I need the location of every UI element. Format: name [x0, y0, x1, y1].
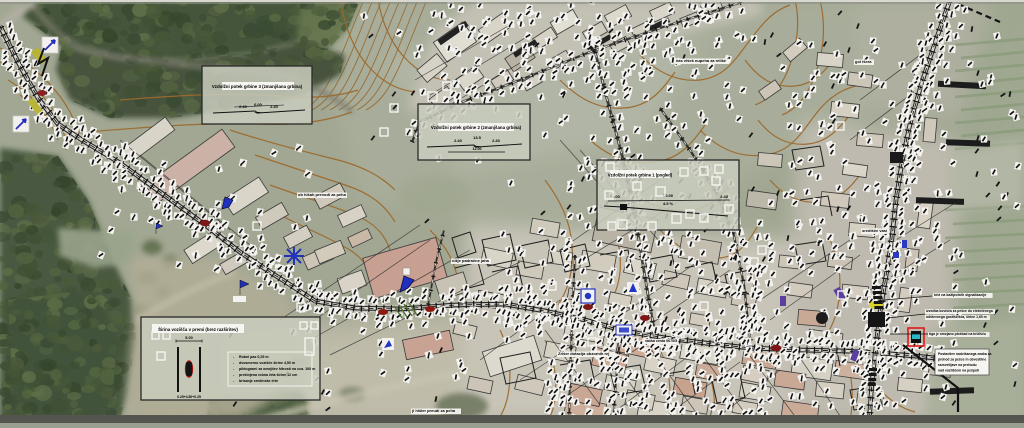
svg-text:4.9 %: 4.9 %: [663, 201, 674, 206]
svg-text:odštevnega gostiščišča, širine: odštevnega gostiščišča, širine 1,60 m: [926, 315, 987, 319]
svg-text:Zrišer dotacija obzornih rej: Zrišer dotacija obzornih rej: [558, 351, 609, 356]
svg-text:izvedba kovišča za pešce do el: izvedba kovišča za pešce do električnega: [926, 309, 993, 313]
svg-text:2.40: 2.40: [720, 194, 729, 199]
svg-text:središče vasi: središče vasi: [862, 228, 887, 233]
svg-text:2.40: 2.40: [270, 104, 279, 109]
svg-text:0.25+4.50+0.25: 0.25+4.50+0.25: [177, 395, 201, 399]
svg-text:ji hišler preudi za peha: ji hišler preudi za peha: [411, 408, 456, 413]
svg-text:2.40: 2.40: [492, 138, 501, 143]
svg-text:Vzdolžni potek grbine 2 (zmanj: Vzdolžni potek grbine 2 (zmanjšana grbin…: [431, 125, 522, 130]
svg-text:čas višek nupeha za relike: čas višek nupeha za relike: [676, 58, 727, 63]
svg-text:ob hišah prevodi za peha: ob hišah prevodi za peha: [298, 192, 347, 197]
svg-text:13.5: 13.5: [473, 135, 482, 140]
svg-text:Postavitev nadvišanega znaka z: Postavitev nadvišanega znaka za: [938, 352, 991, 356]
svg-text:gol išera: gol išera: [855, 59, 872, 64]
svg-text:prehod za pešce in obvestilne: prehod za pešce in obvestilne: [938, 358, 986, 362]
svg-text:vaška cesta 0670/5: vaška cesta 0670/5: [645, 339, 677, 343]
svg-text:Robni pas 0,25 m: Robni pas 0,25 m: [239, 355, 269, 359]
svg-text:tiga je omejano ploščad na kri: tiga je omejano ploščad na križišču: [929, 332, 986, 336]
svg-text:12.00: 12.00: [473, 147, 482, 151]
svg-text:5.00: 5.00: [185, 336, 192, 340]
svg-text:razsvetljave na prehodu: razsvetljave na prehodu: [938, 363, 977, 367]
svg-text:brisanje sredinske črte: brisanje sredinske črte: [239, 379, 278, 383]
svg-text:nad vozliščem na pešpoti: nad vozliščem na pešpoti: [938, 369, 979, 373]
svg-text:Širina vozišča v premi (brez r: Širina vozišča v premi (brez razširitev): [158, 327, 238, 332]
svg-text:Vzdolžni potek grbine 3 (zmanj: Vzdolžni potek grbine 3 (zmanjšana grbin…: [212, 84, 303, 89]
svg-text:križ na kažipotnih signalizaci: križ na kažipotnih signalizacije: [934, 293, 986, 297]
svg-text:nižje padračne jaha: nižje padračne jaha: [452, 258, 490, 263]
svg-text:dvosmerno vozišče širine 4,50: dvosmerno vozišče širine 4,50 m: [239, 361, 295, 365]
svg-text:piktogrami za omejitev hitrost: piktogrami za omejitev hitrosti na cca. …: [239, 367, 315, 371]
svg-text:2.40: 2.40: [454, 138, 463, 143]
svg-text:prekinjena robna črta širine 1: prekinjena robna črta širine 12 cm: [239, 373, 297, 377]
svg-text:Vzdolžni potek grbine 1 (pogle: Vzdolžni potek grbine 1 (pogled): [608, 173, 673, 178]
